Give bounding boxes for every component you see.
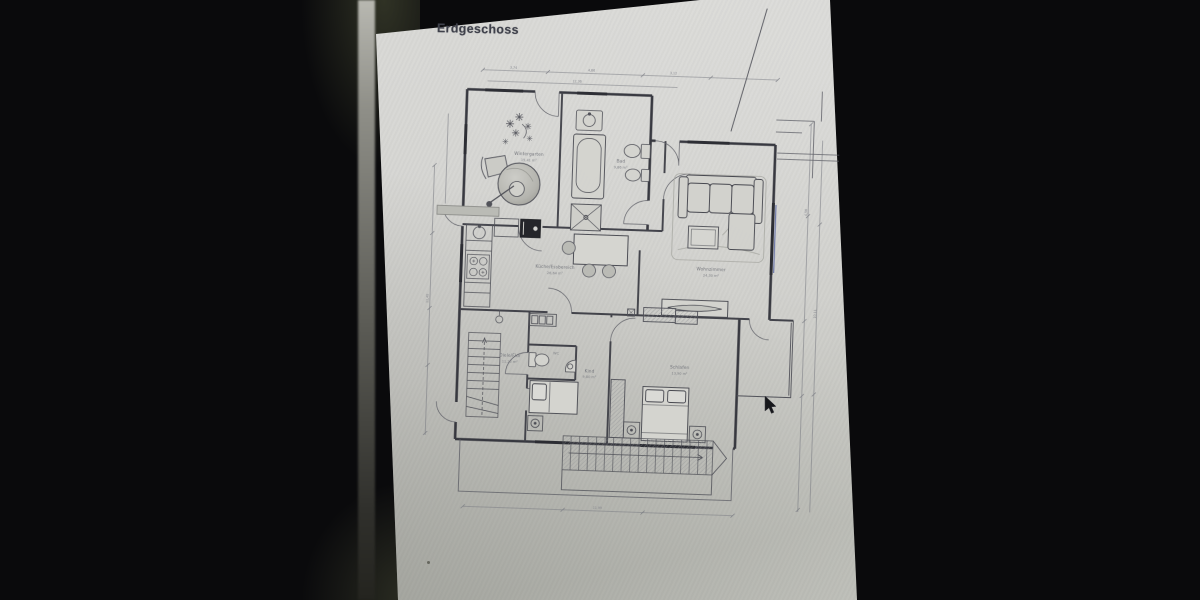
wardrobe-icon: [609, 379, 625, 437]
dim-top-2: 4,86: [588, 68, 595, 72]
nightstand-lamp-icon-left: [623, 422, 640, 439]
counter-segment: [494, 218, 519, 237]
page-edge-highlight: [358, 0, 375, 600]
kitchen-counter-icon: [464, 224, 493, 307]
toilet-icon: [624, 144, 650, 159]
site-boundary-diagonal: [731, 7, 767, 132]
dust-speck: [427, 561, 430, 564]
room-label-schlafen: Schlafen: [670, 364, 690, 371]
room-label-wohnzimmer: Wohnzimmer: [696, 266, 726, 273]
oven-icon: [520, 219, 541, 238]
room-label-wintergarten: Wintergarten: [514, 151, 544, 158]
dim-bottom: 11,99: [593, 506, 602, 510]
terrace-outline: [737, 319, 794, 398]
shower-icon: [570, 204, 601, 231]
room-area-kind: 9,80 m²: [582, 375, 596, 379]
cooktop-icon: [467, 254, 490, 279]
room-label-bad: Bad: [616, 158, 625, 164]
dim-top-1: 3,74: [510, 66, 517, 70]
dim-left: 11,48: [425, 294, 429, 303]
room-label-wc: WC: [553, 351, 560, 355]
hall-cabinet-icon: [529, 313, 556, 326]
room-label-kind: Kind: [584, 368, 594, 374]
bathtub-icon: [572, 134, 606, 199]
wc-toilet-icon: [529, 353, 549, 368]
dim-top-3: 3,12: [670, 71, 677, 75]
single-bed-icon: [529, 381, 578, 415]
bidet-icon: [625, 169, 649, 182]
room-label-diele: Diele/Flur: [499, 352, 521, 359]
mouse-cursor-icon: [764, 396, 780, 416]
dim-right-upper: 4,56: [804, 209, 808, 216]
floor-plan-drawing: 3,74 4,86 3,12 12,36 11,48 4,56 10,11 11…: [412, 0, 850, 537]
adjacent-structure: [774, 90, 841, 179]
room-area-diele: 11,25 m²: [502, 360, 519, 365]
photo-of-floor-plan-screen: Erdgeschoss 3,74 4,86 3,12: [0, 0, 1200, 600]
nightstand-lamp-icon: [527, 416, 543, 432]
plant-icon: [503, 112, 534, 145]
exterior-stairs-icon: [561, 436, 727, 496]
dim-right-total: 10,11: [813, 309, 817, 318]
interior-stairs-icon: [466, 332, 501, 417]
room-area-kueche: 26,64 m²: [547, 271, 564, 276]
sink-icon: [473, 226, 485, 238]
room-label-kueche: Küche/Essbereich: [535, 264, 575, 271]
coffee-table-icon: [688, 226, 719, 249]
dining-table-icon: [573, 234, 628, 266]
dim-top-total: 12,36: [573, 79, 582, 83]
canopy-icon: [437, 205, 499, 216]
floor-plan-svg: 3,74 4,86 3,12 12,36 11,48 4,56 10,11 11…: [412, 0, 850, 537]
room-area-bad: 9,86 m²: [614, 165, 628, 169]
room-area-schlafen: 13,90 m²: [671, 371, 688, 376]
double-bed-icon: [641, 387, 689, 443]
room-area-wintergarten: 15,41 m²: [521, 158, 538, 163]
chaise-icon: [728, 213, 755, 250]
wc-sink-icon: [565, 360, 575, 372]
room-area-wohnzimmer: 24,30 m²: [703, 274, 720, 279]
washbasin-icon: [576, 110, 603, 131]
